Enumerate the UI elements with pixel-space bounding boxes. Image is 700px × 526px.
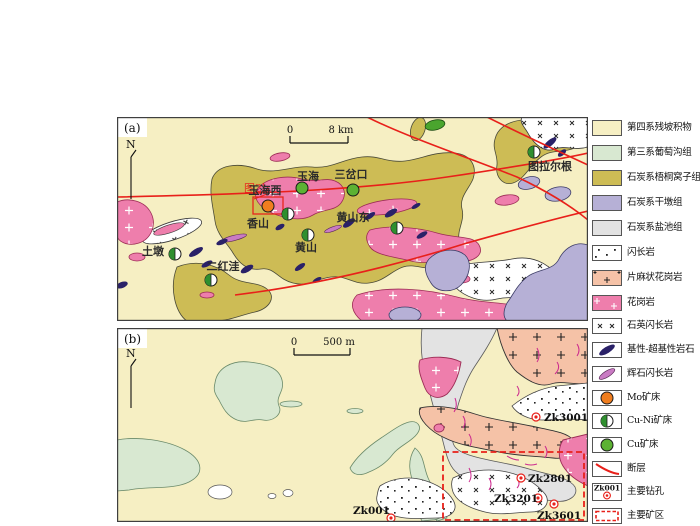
legend-label: 石炭系梧桐窝子组	[627, 170, 700, 186]
north-label-a: N	[126, 138, 136, 151]
place-label-tudun: 土墩	[142, 244, 165, 258]
mafic-ultramafic-swatch	[592, 342, 622, 358]
legend-item-pyroxene-diorite: 辉石闪长岩	[592, 363, 673, 380]
main-mining-area-swatch	[592, 508, 622, 524]
place-label-huangshandong: 黄山东	[337, 210, 370, 224]
drillhole-label-zk001: Zk001	[353, 505, 390, 517]
legend-item-wutongwozi: 石炭系梧桐窝子组	[592, 167, 700, 184]
panel-a-map: 图2b	[117, 117, 588, 321]
cu-ni-deposit-marker	[302, 229, 314, 241]
legend-item-quartz-diorite: 石英闪长岩	[592, 315, 673, 332]
legend-label: 第三系葡萄沟组	[627, 145, 691, 161]
legend-label: Cu矿床	[627, 437, 658, 453]
cu-ni-deposit-marker	[282, 208, 294, 220]
place-label-yuhai: 玉海	[297, 169, 319, 183]
legend-label: 石炭系盐池组	[627, 220, 682, 236]
north-label-b: N	[126, 347, 136, 360]
place-label-yuhaixi: 玉海西	[249, 183, 282, 197]
legend-label: 闪长岩	[627, 245, 655, 261]
panel-a-label: (a)	[124, 121, 141, 135]
legend-item-gneissic-granite: 片麻状花岗岩	[592, 267, 682, 284]
legend-label: 基性-超基性岩石	[627, 342, 694, 358]
legend-item-mafic-ultramafic: 基性-超基性岩石	[592, 339, 694, 356]
yanchi-swatch	[592, 220, 622, 236]
legend-item-cu-deposit: Cu矿床	[592, 434, 658, 451]
fault-swatch	[592, 461, 622, 477]
cu-ni-deposit-swatch	[592, 413, 622, 429]
place-label-huangshan: 黄山	[295, 240, 317, 254]
place-label-xiangshan: 香山	[246, 216, 269, 230]
drillhole-marker	[517, 474, 525, 482]
legend-label: 石炭系干墩组	[627, 195, 682, 211]
main-drillhole-swatch: Zk001	[592, 483, 622, 501]
granite-swatch	[592, 295, 622, 311]
cu-deposit-marker	[347, 184, 359, 196]
panel-b-map: Zk3001 Zk2801 Zk3201 Zk3601 Zk001 0 500 …	[117, 328, 588, 522]
cu-deposit-swatch	[592, 437, 622, 453]
place-label-tulaergen: 图拉尔根	[528, 159, 573, 173]
quartz-diorite-swatch	[592, 318, 622, 334]
drillhole-label-zk3601: Zk3601	[537, 510, 581, 522]
legend-item-fault: 断层	[592, 458, 645, 475]
diorite-swatch	[592, 245, 622, 261]
panel-b-label: (b)	[124, 332, 141, 346]
drillhole-label-zk3001: Zk3001	[544, 412, 588, 424]
place-label-erhongwa: 二红洼	[207, 259, 240, 273]
drillhole-marker	[550, 500, 558, 508]
quaternary-swatch	[592, 120, 622, 136]
scale-length-a: 8 km	[328, 125, 354, 136]
legend-item-mo-deposit: Mo矿床	[592, 387, 660, 404]
legend-item-gandun: 石炭系干墩组	[592, 192, 682, 209]
drillhole-label-zk2801: Zk2801	[528, 473, 572, 485]
tertiary-swatch	[592, 145, 622, 161]
drillhole-label-zk3201: Zk3201	[494, 493, 538, 505]
map-legend: 第四系残坡积物 第三系葡萄沟组 石炭系梧桐窝子组 石炭系干墩组 石炭系盐池组 闪…	[592, 0, 700, 526]
scale-length-b: 500 m	[323, 337, 355, 348]
pyroxene-diorite-swatch	[592, 366, 622, 382]
drillhole-swatch-text: Zk001	[594, 483, 620, 492]
legend-item-quaternary: 第四系残坡积物	[592, 117, 691, 134]
mo-deposit-swatch	[592, 390, 622, 406]
place-label-sanchakou: 三岔口	[335, 167, 368, 181]
legend-item-main-mining-area: 主要矿区	[592, 505, 664, 522]
legend-label: 片麻状花岗岩	[627, 270, 682, 286]
mo-deposit-marker	[262, 200, 274, 212]
legend-item-main-drillhole: Zk001主要钻孔	[592, 481, 664, 498]
cu-deposit-marker	[296, 182, 308, 194]
gandun-swatch	[592, 195, 622, 211]
legend-label: 石英闪长岩	[627, 318, 673, 334]
legend-item-cu-ni-deposit: Cu-Ni矿床	[592, 410, 672, 427]
wutongwozi-swatch	[592, 170, 622, 186]
cu-ni-deposit-marker	[391, 222, 403, 234]
legend-label: 断层	[627, 461, 645, 477]
cu-ni-deposit-marker	[205, 274, 217, 286]
scale-zero-b: 0	[291, 337, 297, 348]
drillhole-marker	[532, 413, 540, 421]
legend-label: 第四系残坡积物	[627, 120, 691, 136]
cu-ni-deposit-marker	[528, 146, 540, 158]
legend-label: 花岗岩	[627, 295, 655, 311]
legend-label: 辉石闪长岩	[627, 366, 673, 382]
legend-item-granite: 花岗岩	[592, 292, 655, 309]
scale-zero-a: 0	[287, 125, 293, 136]
legend-label: 主要钻孔	[627, 484, 664, 500]
legend-item-yanchi: 石炭系盐池组	[592, 217, 682, 234]
gneissic-granite-swatch	[592, 270, 622, 286]
legend-label: Cu-Ni矿床	[627, 413, 672, 429]
geological-map-figure: 图2b	[0, 0, 700, 526]
legend-item-tertiary: 第三系葡萄沟组	[592, 142, 691, 159]
cu-ni-deposit-marker	[169, 248, 181, 260]
legend-label: Mo矿床	[627, 390, 660, 406]
legend-item-diorite: 闪长岩	[592, 242, 655, 259]
legend-label: 主要矿区	[627, 508, 664, 524]
